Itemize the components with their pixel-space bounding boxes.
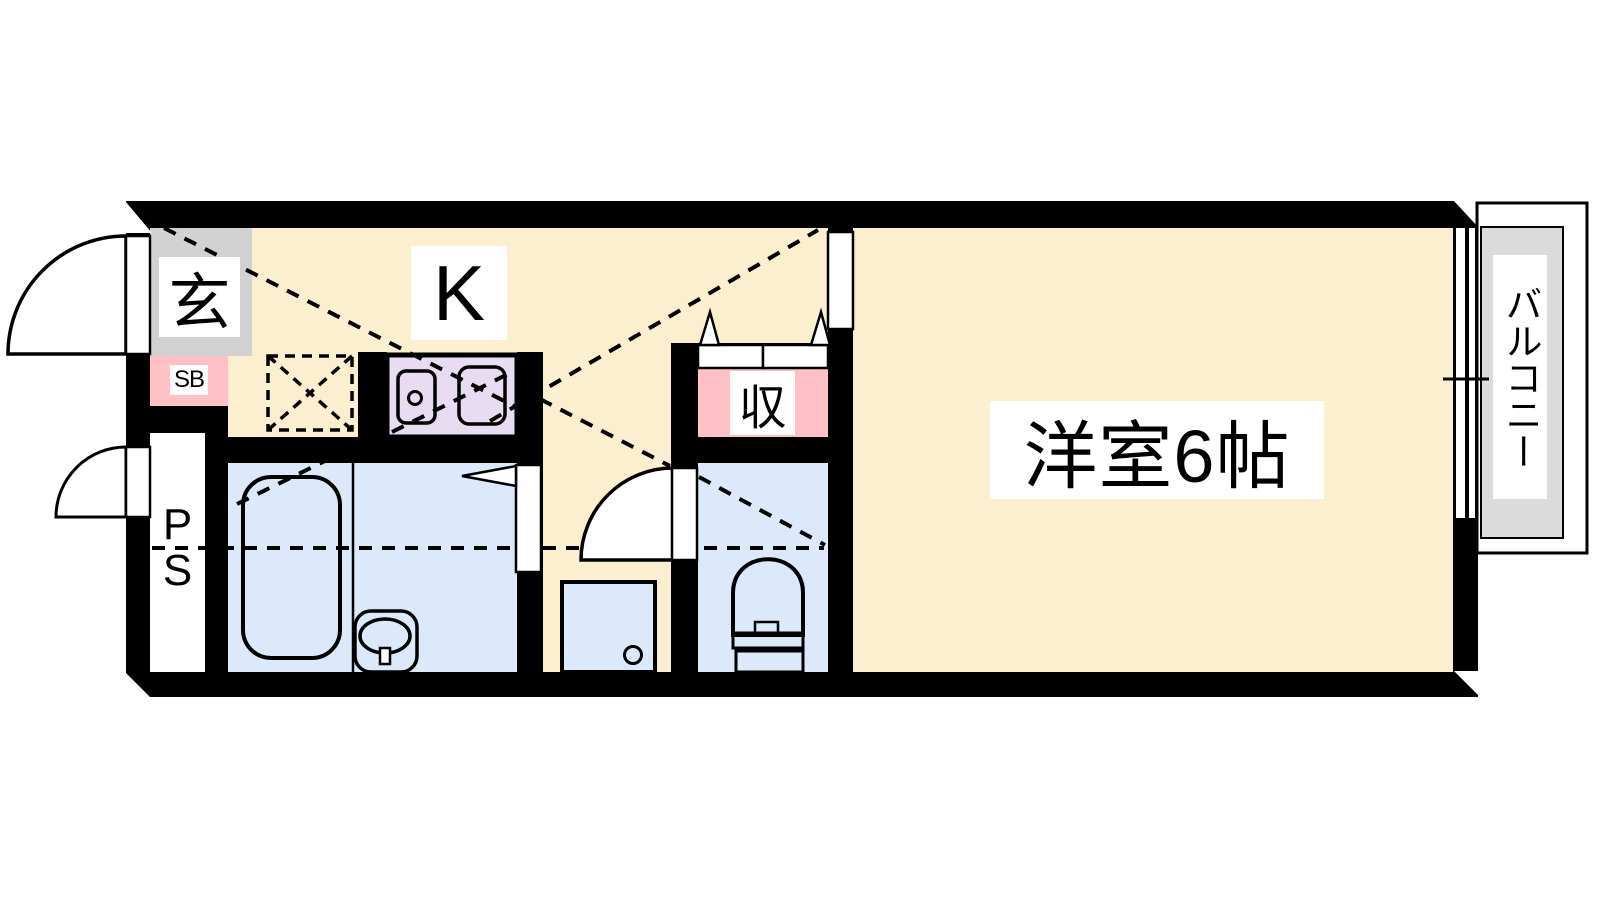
pipe-space-door xyxy=(56,447,150,517)
basin-faucet xyxy=(380,648,390,664)
label-western-room: 洋室6帖 xyxy=(990,401,1324,499)
label-entrance: 玄 xyxy=(159,257,240,337)
floorplan: 玄 SB K P S 収 洋室6帖 バルコニー xyxy=(0,0,1600,900)
wall-pipe-space-right xyxy=(205,433,228,672)
bathroom-door-leaf xyxy=(516,465,541,572)
entrance-door-leaf xyxy=(126,236,150,354)
closet-door-panel-left xyxy=(698,345,763,368)
label-pipe-space: P S xyxy=(150,498,205,598)
closet-door-panel-right xyxy=(763,345,828,368)
label-pipe-space-p: P xyxy=(163,502,192,548)
wall-kitchen-stub-left xyxy=(358,352,387,437)
wall-under-shoebox xyxy=(150,406,228,433)
toilet-lid-detail xyxy=(755,622,778,633)
entrance-door xyxy=(8,236,150,354)
window-rail-middle xyxy=(1465,228,1469,518)
washing-machine-pan xyxy=(562,582,655,672)
floor-bathroom xyxy=(228,463,517,672)
wall-closet-bottom xyxy=(671,437,853,463)
wall-bathroom-top xyxy=(228,437,543,463)
wall-bottom xyxy=(126,672,1478,697)
doorway-western-room xyxy=(828,232,853,329)
window-rail-right xyxy=(1475,228,1478,518)
label-balcony: バルコニー xyxy=(1493,255,1547,499)
window-rail-left xyxy=(1453,228,1456,518)
entrance-door-swing xyxy=(8,236,126,354)
wall-top xyxy=(126,201,1478,228)
floor-toilet xyxy=(697,463,828,672)
floorplan-drawing xyxy=(0,0,1600,900)
pipe-space-door-leaf xyxy=(126,447,150,517)
toilet-door-leaf xyxy=(672,468,697,560)
label-kitchen: K xyxy=(411,246,507,340)
label-pipe-space-s: S xyxy=(163,548,192,594)
label-closet: 収 xyxy=(730,371,795,435)
label-shoebox: SB xyxy=(170,365,208,395)
pipe-space-door-swing xyxy=(56,447,126,517)
